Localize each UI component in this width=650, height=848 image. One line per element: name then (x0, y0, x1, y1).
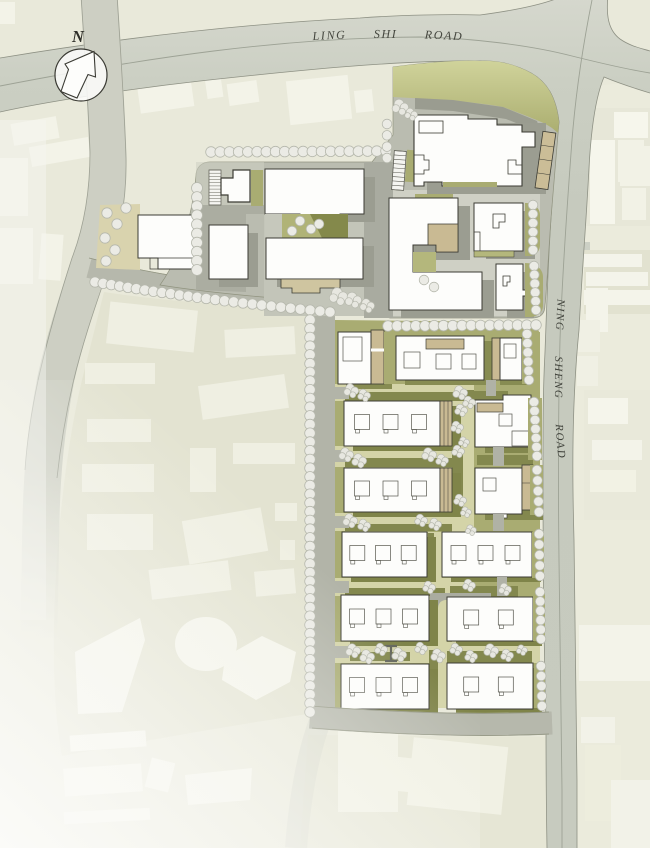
svg-text:N: N (71, 27, 85, 46)
